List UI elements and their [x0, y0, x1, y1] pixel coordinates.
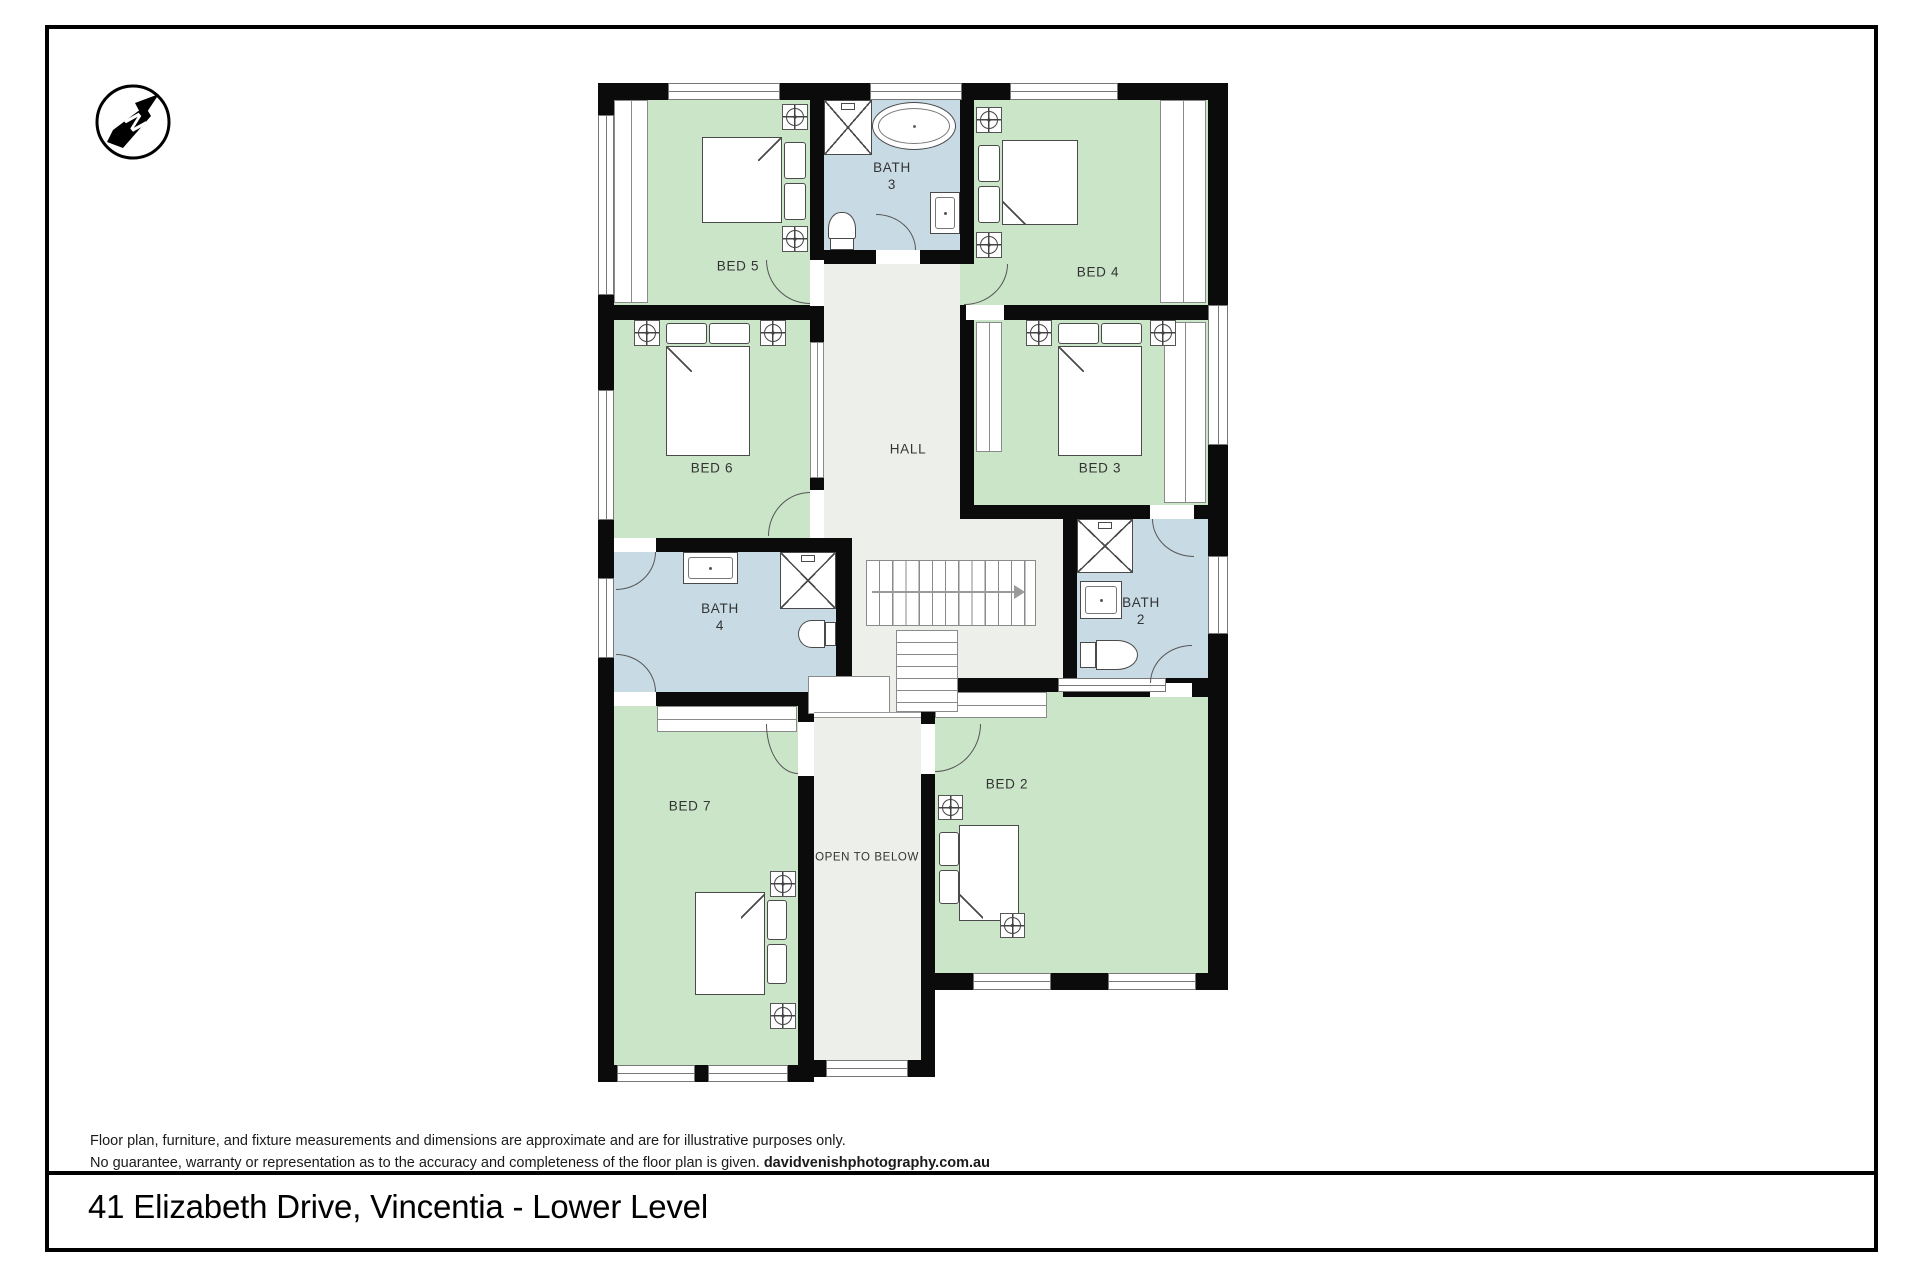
sliding-door — [810, 342, 824, 478]
disclaimer-text: Floor plan, furniture, and fixture measu… — [90, 1130, 990, 1174]
window-symbol — [708, 1065, 788, 1082]
room-label-open-to-below: OPEN TO BELOW — [815, 850, 919, 867]
window-symbol — [617, 1065, 695, 1082]
doorway — [921, 724, 935, 774]
blanket-fold — [758, 137, 782, 161]
downlight-symbol — [1000, 913, 1025, 938]
blanket-fold — [741, 892, 765, 920]
room-label-bed3: BED 3 — [1079, 460, 1122, 477]
pillow-symbol — [939, 870, 959, 904]
pillow-symbol — [784, 142, 806, 179]
robe-slider — [1160, 100, 1206, 303]
stairs-direction-arrow — [872, 591, 1016, 593]
room-label-bed6: BED 6 — [691, 460, 734, 477]
window-symbol — [598, 578, 614, 658]
window-symbol — [1010, 83, 1118, 100]
shower-symbol — [780, 552, 836, 609]
wall — [598, 305, 824, 320]
window-symbol — [668, 83, 780, 100]
wall — [1208, 83, 1228, 990]
doorway — [810, 490, 824, 538]
shower-symbol — [824, 100, 872, 155]
room-label-bed7: BED 7 — [669, 798, 712, 815]
blanket-fold — [1058, 346, 1084, 372]
vanity-symbol — [930, 192, 960, 234]
window-symbol — [870, 83, 962, 100]
room-label-bath3-line2: 3 — [873, 176, 911, 193]
pillow-symbol — [939, 832, 959, 866]
window-symbol — [973, 973, 1051, 990]
pillow-symbol — [1058, 323, 1099, 344]
window-symbol — [598, 115, 614, 295]
room-label-bath2-line2: 2 — [1122, 611, 1160, 628]
pillow-symbol — [784, 183, 806, 220]
pillow-symbol — [978, 186, 1000, 223]
robe-slider — [614, 100, 648, 303]
room-label-bath4-line1: BATH — [701, 600, 739, 617]
wall — [810, 98, 824, 552]
window-symbol — [598, 390, 614, 520]
stairs-landing — [808, 676, 890, 714]
robe-slider — [976, 322, 1002, 452]
downlight-symbol — [1026, 320, 1052, 346]
downlight-symbol — [634, 320, 660, 346]
wall — [960, 305, 974, 519]
room-label-bath2: BATH 2 — [1122, 594, 1160, 628]
blanket-fold — [666, 346, 692, 372]
doorway — [614, 538, 656, 552]
downlight-symbol — [782, 226, 808, 252]
doorway — [798, 722, 814, 776]
vanity-symbol — [683, 552, 738, 584]
window-symbol — [826, 1060, 908, 1077]
pillow-symbol — [1101, 323, 1142, 344]
room-open-to-below — [814, 712, 921, 1060]
wall — [960, 98, 974, 264]
shower-symbol — [1077, 519, 1133, 573]
room-label-bath3: BATH 3 — [873, 159, 911, 193]
room-label-hall: HALL — [890, 441, 927, 458]
room-label-bath4-line2: 4 — [701, 617, 739, 634]
pillow-symbol — [709, 323, 750, 344]
room-label-bath4: BATH 4 — [701, 600, 739, 634]
room-label-bed5: BED 5 — [717, 258, 760, 275]
wall — [1063, 505, 1077, 697]
downlight-symbol — [976, 107, 1002, 133]
robe-slider — [1164, 322, 1206, 503]
toilet-symbol — [798, 620, 836, 648]
room-label-bed4: BED 4 — [1077, 264, 1120, 281]
pillow-symbol — [767, 944, 787, 984]
photographer-credit: davidvenishphotography.com.au — [764, 1155, 990, 1171]
pillow-symbol — [978, 145, 1000, 182]
floorplan-page: N — [0, 0, 1920, 1280]
stairs-lower-flight — [896, 630, 958, 712]
balustrade — [814, 712, 921, 718]
north-arrow-icon: N — [93, 82, 173, 162]
bathtub-symbol — [872, 102, 956, 150]
downlight-symbol — [770, 1003, 796, 1029]
toilet-symbol — [1080, 640, 1138, 670]
blanket-fold — [1002, 201, 1026, 225]
downlight-symbol — [976, 232, 1002, 258]
footer-divider — [45, 1171, 1878, 1175]
blanket-fold — [959, 891, 983, 921]
toilet-symbol — [828, 212, 856, 250]
downlight-symbol — [938, 795, 963, 820]
window-symbol — [1208, 556, 1228, 634]
disclaimer-line2-text: No guarantee, warranty or representation… — [90, 1155, 760, 1171]
doorway — [966, 305, 1004, 320]
stairs-symbol — [866, 560, 1036, 626]
room-label-bath3-line1: BATH — [873, 159, 911, 176]
window-symbol — [1208, 305, 1228, 445]
downlight-symbol — [760, 320, 786, 346]
doorway — [1150, 505, 1194, 519]
room-label-bath2-line1: BATH — [1122, 594, 1160, 611]
doorway — [614, 692, 656, 706]
pillow-symbol — [666, 323, 707, 344]
window-symbol — [1108, 973, 1196, 990]
room-label-bed2: BED 2 — [986, 776, 1029, 793]
vanity-symbol — [1080, 581, 1122, 619]
downlight-symbol — [1150, 320, 1176, 346]
downlight-symbol — [770, 871, 796, 897]
stairs-arrow-head-icon — [1014, 585, 1025, 599]
downlight-symbol — [782, 104, 808, 130]
page-title: 41 Elizabeth Drive, Vincentia - Lower Le… — [88, 1188, 708, 1226]
compass-icon: N — [93, 82, 173, 162]
doorway — [876, 250, 920, 264]
pillow-symbol — [767, 900, 787, 940]
doorway — [810, 260, 824, 306]
disclaimer-line1: Floor plan, furniture, and fixture measu… — [90, 1130, 990, 1152]
